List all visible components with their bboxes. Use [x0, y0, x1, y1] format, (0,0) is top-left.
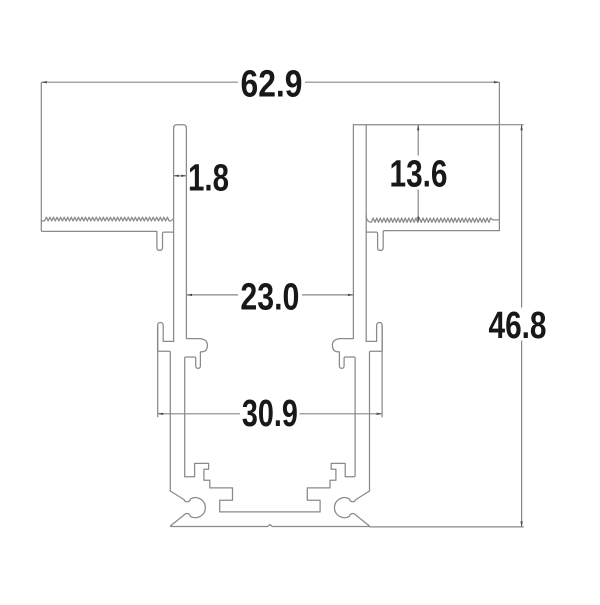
svg-text:62.9: 62.9	[241, 64, 303, 106]
svg-text:13.6: 13.6	[390, 153, 448, 195]
svg-text:1.8: 1.8	[188, 158, 229, 200]
svg-text:23.0: 23.0	[240, 277, 299, 319]
svg-text:30.9: 30.9	[242, 393, 298, 435]
svg-text:46.8: 46.8	[489, 305, 547, 347]
